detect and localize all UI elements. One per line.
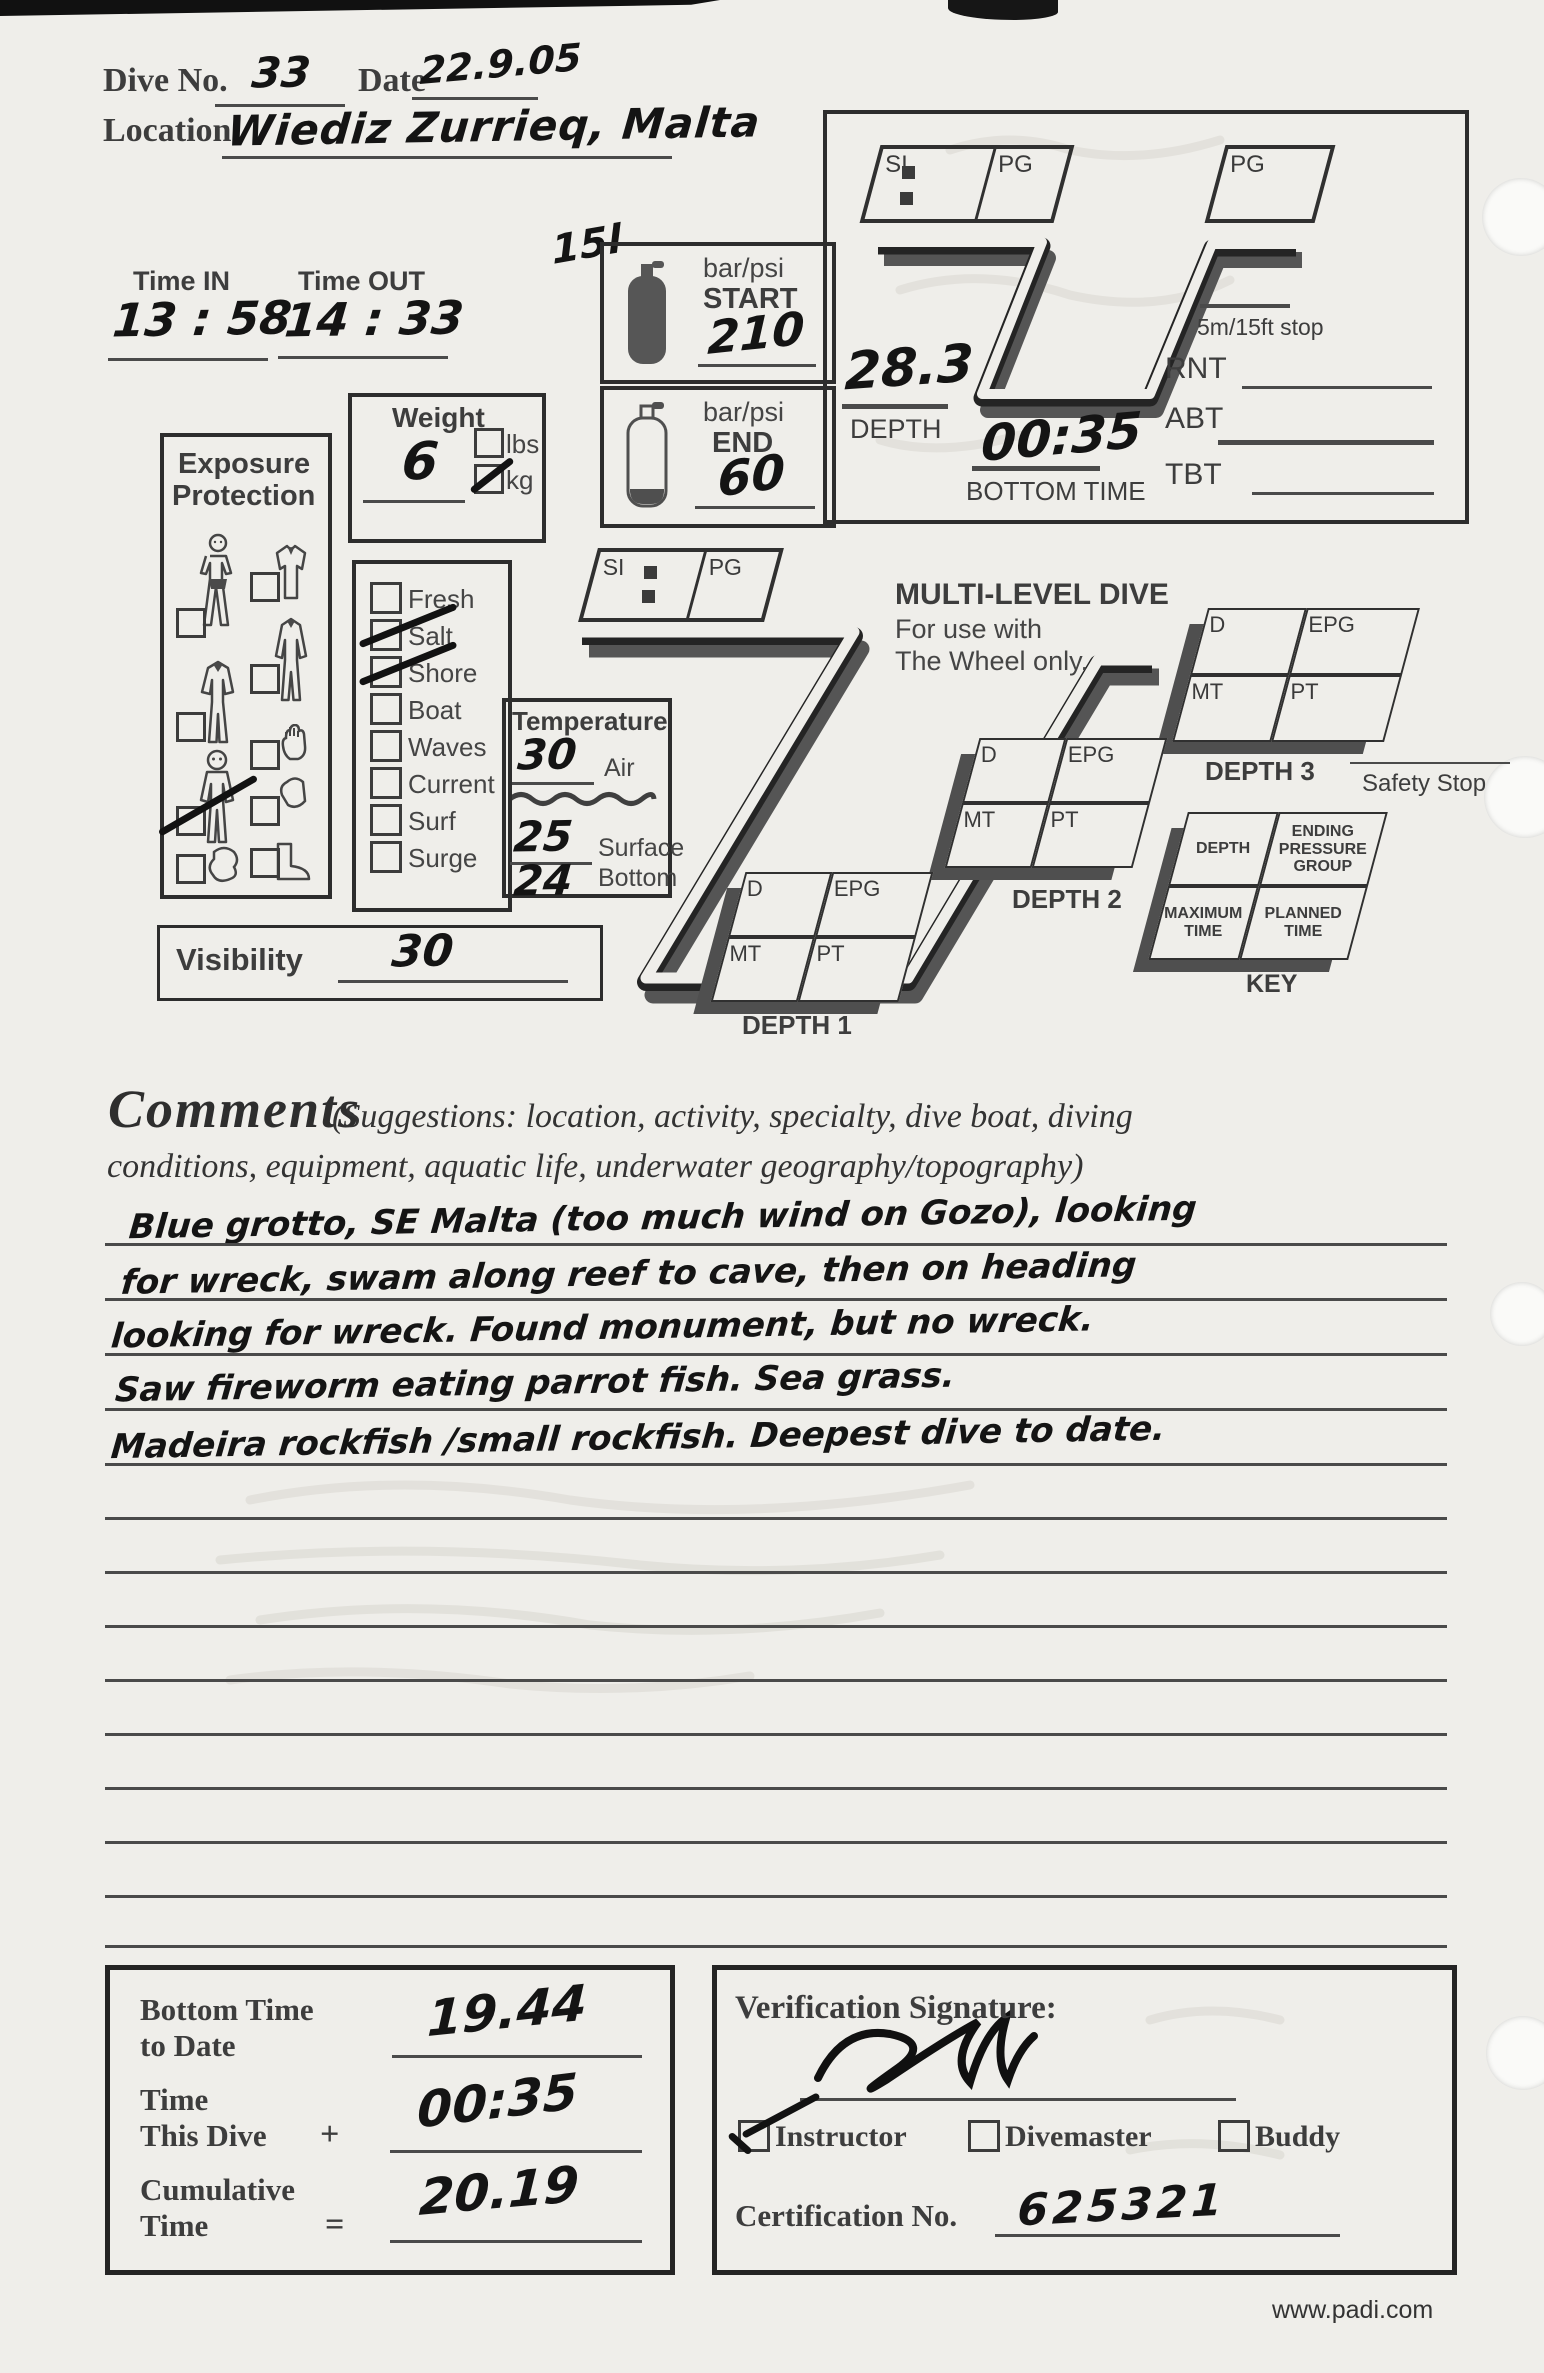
temperature-surface-value[interactable]: 25: [512, 811, 575, 861]
comment-rule: [105, 1787, 1447, 1790]
cumulative-time-label-1: Cumulative: [140, 2172, 295, 2208]
exposure-boot-checkbox[interactable]: [250, 848, 280, 878]
condition-fresh-checkbox[interactable]: [370, 582, 402, 614]
weight-label: Weight: [392, 402, 485, 434]
time-in-value[interactable]: 13 : 58: [110, 290, 293, 347]
weight-line: [363, 500, 465, 503]
temperature-air-line: [512, 782, 594, 785]
comment-rule: [105, 1625, 1447, 1628]
si-label: SI: [603, 554, 625, 581]
bottom-time-to-date-label-1: Bottom Time: [140, 1992, 314, 2028]
weight-lbs-checkbox[interactable]: [474, 428, 504, 458]
temperature-surface-label: Surface: [598, 834, 684, 863]
comments-title: Comments: [108, 1078, 361, 1140]
bottom-time-to-date-label-2: to Date: [140, 2028, 236, 2064]
multilevel-subtitle-1: For use with: [895, 614, 1042, 645]
condition-surge-checkbox[interactable]: [370, 841, 402, 873]
visibility-value[interactable]: 30: [390, 925, 456, 977]
instructor-label: Instructor: [775, 2120, 907, 2154]
comment-rule: [105, 1353, 1447, 1356]
comment-rule: [105, 1517, 1447, 1520]
exposure-shorty-checkbox[interactable]: [176, 712, 206, 742]
depth-line: [842, 404, 948, 409]
d-label: D: [981, 742, 997, 768]
rnt-line: [1242, 386, 1432, 389]
safety-stop-tick: [1200, 304, 1290, 308]
buddy-label: Buddy: [1255, 2120, 1340, 2154]
exposure-mitt-checkbox[interactable]: [250, 796, 280, 826]
exposure-vest-checkbox[interactable]: [250, 572, 280, 602]
bottom-time-line: [972, 466, 1100, 471]
condition-current-checkbox[interactable]: [370, 767, 402, 799]
comment-rule: [105, 1408, 1447, 1411]
weight-kg-label: kg: [506, 465, 533, 496]
key-depth-label: DEPTH: [1196, 840, 1250, 858]
time-out-value[interactable]: 14 : 33: [282, 290, 465, 347]
cumulative-time-line: [390, 2240, 642, 2243]
tank-start-value[interactable]: 210: [707, 301, 806, 365]
comment-rule: [105, 1895, 1447, 1898]
temperature-bottom-value[interactable]: 24: [512, 855, 575, 905]
comment-rule: [105, 1298, 1447, 1301]
key-caption: KEY: [1246, 970, 1297, 999]
abt-line: [1218, 440, 1434, 445]
temperature-air-value[interactable]: 30: [516, 729, 579, 779]
equals-sign: =: [325, 2206, 344, 2244]
comment-rule: [105, 1571, 1447, 1574]
depth-label: DEPTH: [850, 414, 942, 445]
location-line: [222, 156, 672, 159]
pg-end-box: PG: [1205, 145, 1336, 223]
comment-rule: [105, 1841, 1447, 1844]
depth3-label: DEPTH 3: [1205, 756, 1315, 787]
pg-label: PG: [708, 554, 741, 581]
temperature-bottom-label: Bottom: [598, 864, 677, 893]
visibility-label: Visibility: [176, 942, 303, 978]
location-label: Location: [103, 112, 231, 150]
hood-icon: [204, 846, 244, 890]
location-value[interactable]: Wiediz Zurrieq, Malta: [225, 97, 762, 155]
pg-label: PG: [998, 151, 1033, 179]
pg-label: PG: [1230, 151, 1265, 179]
depth1-grid[interactable]: D EPG MT PT: [711, 872, 934, 1002]
d-label: D: [747, 876, 763, 902]
certification-no-label: Certification No.: [735, 2198, 957, 2234]
key-epg-label: ENDING PRESSURE GROUP: [1277, 823, 1369, 876]
pt-label: PT: [817, 941, 845, 967]
tank-start-unit: bar/psi: [703, 253, 784, 284]
key-grid: DEPTH ENDING PRESSURE GROUP MAXIMUM TIME…: [1148, 812, 1388, 960]
tbt-line: [1252, 492, 1434, 495]
mt-label: MT: [963, 807, 995, 833]
divemaster-checkbox[interactable]: [968, 2120, 1000, 2152]
date-line: [412, 97, 538, 100]
tank-start-icon: [618, 254, 674, 368]
comments-suggestions-1: (Suggestions: location, activity, specia…: [332, 1098, 1133, 1136]
date-label: Date: [358, 62, 426, 100]
si-colon-dot: [900, 192, 913, 205]
time-this-dive-label-2: This Dive: [140, 2118, 267, 2154]
pt-label: PT: [1051, 807, 1079, 833]
pt-label: PT: [1290, 679, 1318, 705]
safety-stop-label: Safety Stop: [1362, 770, 1486, 798]
signature-line: [800, 2098, 1236, 2101]
condition-current-label: Current: [408, 769, 495, 800]
condition-surf-checkbox[interactable]: [370, 804, 402, 836]
condition-boat-checkbox[interactable]: [370, 693, 402, 725]
exposure-full-suit-checkbox[interactable]: [250, 664, 280, 694]
depth2-grid[interactable]: D EPG MT PT: [945, 738, 1168, 868]
temperature-air-label: Air: [604, 754, 635, 783]
comment-rule: [105, 1463, 1447, 1466]
comment-rule: [105, 1243, 1447, 1246]
glove-icon: [276, 724, 310, 770]
dive-no-label: Dive No.: [103, 62, 228, 100]
weight-value[interactable]: 6: [399, 432, 441, 493]
bottom-time-label: BOTTOM TIME: [966, 476, 1146, 507]
tank-end-icon: [618, 396, 674, 512]
comment-rule: [105, 1733, 1447, 1736]
d-label: D: [1209, 612, 1225, 638]
depth1-label: DEPTH 1: [742, 1010, 852, 1041]
comment-rule: [105, 1945, 1447, 1948]
tank-end-line: [695, 506, 815, 509]
epg-label: EPG: [1068, 742, 1114, 768]
condition-surge-label: Surge: [408, 843, 477, 874]
si-colon-dot: [902, 166, 915, 179]
multilevel-title: MULTI-LEVEL DIVE: [895, 578, 1169, 612]
visibility-line: [338, 980, 568, 983]
condition-surf-label: Surf: [408, 806, 456, 837]
stop-label: 5m/15ft stop: [1197, 314, 1324, 341]
safety-stop-line: [1350, 762, 1510, 764]
si-pg-box-multilevel: SI PG: [578, 548, 784, 622]
abt-label: ABT: [1165, 402, 1223, 436]
condition-waves-label: Waves: [408, 732, 487, 763]
mitt-icon: [276, 774, 310, 818]
exposure-swimsuit-checkbox[interactable]: [176, 608, 206, 638]
comments-suggestions-2: conditions, equipment, aquatic life, und…: [107, 1148, 1083, 1186]
si-colon-dot: [642, 590, 655, 603]
key-max-time-label: MAXIMUM TIME: [1161, 905, 1247, 940]
dive-no-value[interactable]: 33: [250, 47, 313, 97]
mt-label: MT: [729, 941, 761, 967]
exposure-title-2: Protection: [172, 480, 315, 513]
mt-label: MT: [1191, 679, 1223, 705]
epg-label: EPG: [1308, 612, 1354, 638]
condition-waves-checkbox[interactable]: [370, 730, 402, 762]
exposure-glove-checkbox[interactable]: [250, 740, 280, 770]
epg-label: EPG: [834, 876, 880, 902]
rnt-label: RNT: [1165, 352, 1227, 386]
multilevel-subtitle-2: The Wheel only.: [895, 646, 1088, 677]
depth-value[interactable]: 28.3: [844, 334, 975, 403]
tank-end-unit: bar/psi: [703, 397, 784, 428]
bottom-time-to-date-line: [392, 2055, 642, 2058]
verification-title: Verification Signature:: [735, 1990, 1057, 2027]
padi-url: www.padi.com: [1272, 2296, 1433, 2325]
tank-start-line: [698, 364, 816, 367]
key-planned-time-label: PLANNED TIME: [1261, 905, 1347, 940]
cumulative-time-label-2: Time: [140, 2208, 208, 2244]
exposure-hood-checkbox[interactable]: [176, 854, 206, 884]
weight-lbs-label: lbs: [506, 429, 539, 460]
depth2-label: DEPTH 2: [1012, 884, 1122, 915]
dive-log-page: Dive No. 33 Date 22.9.05 Location Wiediz…: [0, 0, 1544, 2373]
time-in-line: [108, 358, 268, 361]
comment-rule: [105, 1679, 1447, 1682]
time-this-dive-line: [390, 2150, 642, 2153]
certification-no-line: [995, 2234, 1340, 2237]
condition-boat-label: Boat: [408, 695, 462, 726]
time-this-dive-label-1: Time: [140, 2082, 208, 2118]
depth3-grid[interactable]: D EPG MT PT: [1172, 608, 1420, 742]
si-colon-dot: [644, 566, 657, 579]
tank-end-value[interactable]: 60: [718, 444, 785, 509]
buddy-checkbox[interactable]: [1218, 2120, 1250, 2152]
si-pg-box: SI PG: [860, 145, 1075, 223]
time-out-line: [278, 356, 448, 359]
tbt-label: TBT: [1165, 458, 1222, 492]
divemaster-label: Divemaster: [1005, 2120, 1152, 2154]
exposure-title-1: Exposure: [178, 448, 310, 481]
plus-sign: +: [320, 2116, 339, 2154]
